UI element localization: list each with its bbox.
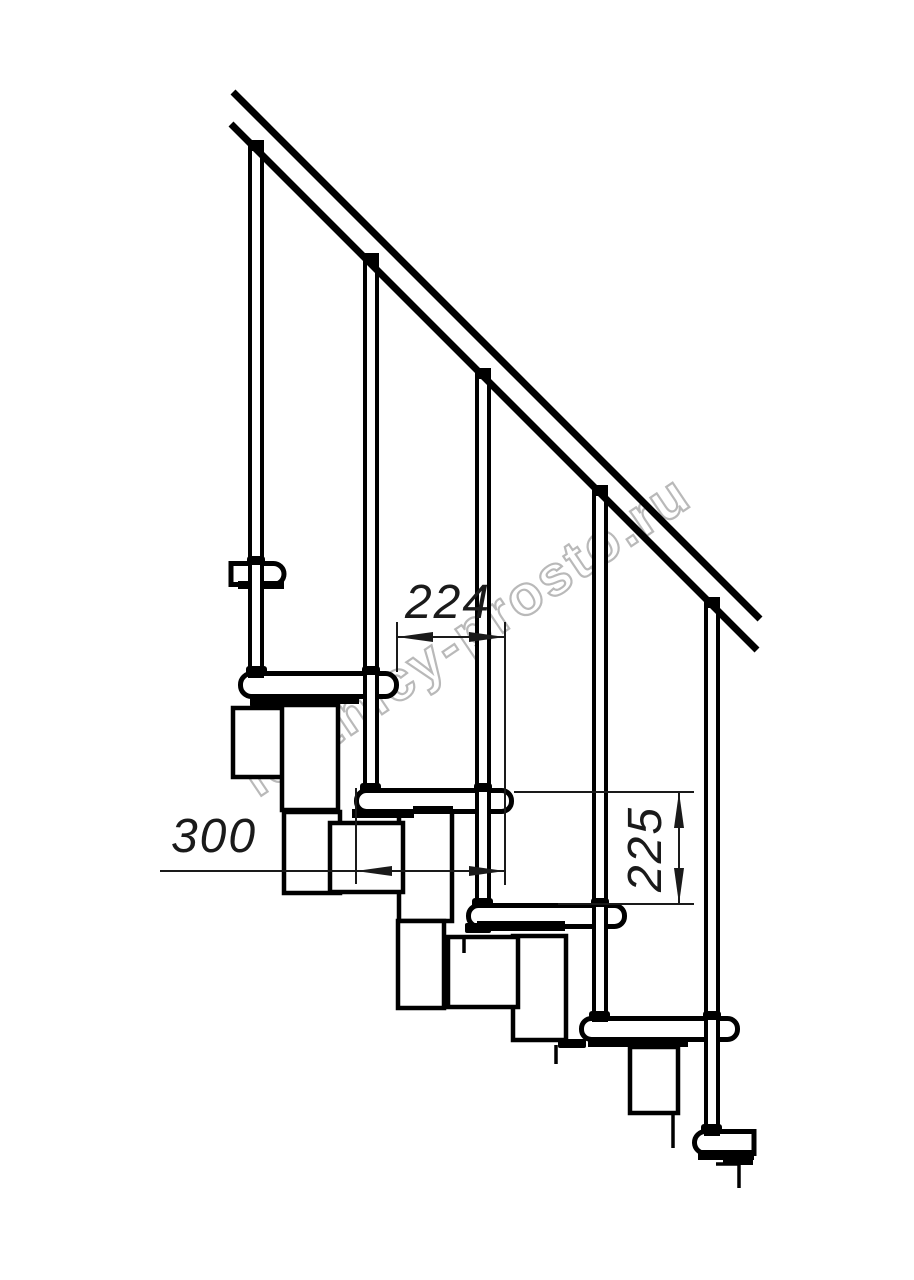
baluster-foot — [701, 1124, 722, 1134]
mount-bar — [352, 809, 414, 818]
baluster-foot — [246, 666, 267, 676]
mount-bar — [413, 806, 453, 814]
baluster-4 — [594, 493, 606, 1020]
baluster-foot — [589, 1011, 610, 1021]
baluster-3 — [477, 376, 489, 906]
mount-bar — [588, 1037, 688, 1047]
module-box — [399, 810, 452, 921]
baluster-2 — [365, 262, 377, 791]
module-box — [398, 921, 444, 1008]
baluster-5 — [706, 605, 718, 1134]
baluster-1 — [250, 149, 262, 676]
tread-knob — [474, 783, 492, 792]
mount-clip — [250, 697, 284, 707]
module-box — [513, 936, 566, 1040]
module-box — [630, 1047, 678, 1113]
baluster-foot — [360, 783, 381, 793]
tread-knob — [247, 556, 265, 565]
mount-bar — [281, 695, 359, 704]
handrail-top-edge — [233, 92, 760, 619]
arrow-down — [674, 868, 684, 904]
staircase-drawing-canvas: lestnicy-prosto.ru — [0, 0, 914, 1280]
handrail-bottom-edge — [231, 124, 757, 650]
tread-knob — [591, 898, 609, 907]
baluster-foot — [472, 898, 493, 908]
dimension-label-225: 225 — [619, 806, 672, 893]
staircase-technical-drawing: lestnicy-prosto.ru — [0, 0, 914, 1280]
mount-bar — [477, 921, 565, 931]
handrail — [231, 92, 760, 650]
tread-knob — [362, 666, 380, 675]
dimension-label-300: 300 — [171, 810, 257, 863]
module-box — [282, 705, 338, 810]
mount-clip — [723, 1156, 753, 1165]
mount-clip — [558, 1039, 586, 1048]
module-box — [448, 937, 518, 1007]
tread-knob — [703, 1011, 721, 1020]
dimension-label-224: 224 — [404, 576, 491, 629]
arrow-up — [674, 792, 684, 828]
module-box — [330, 823, 403, 892]
